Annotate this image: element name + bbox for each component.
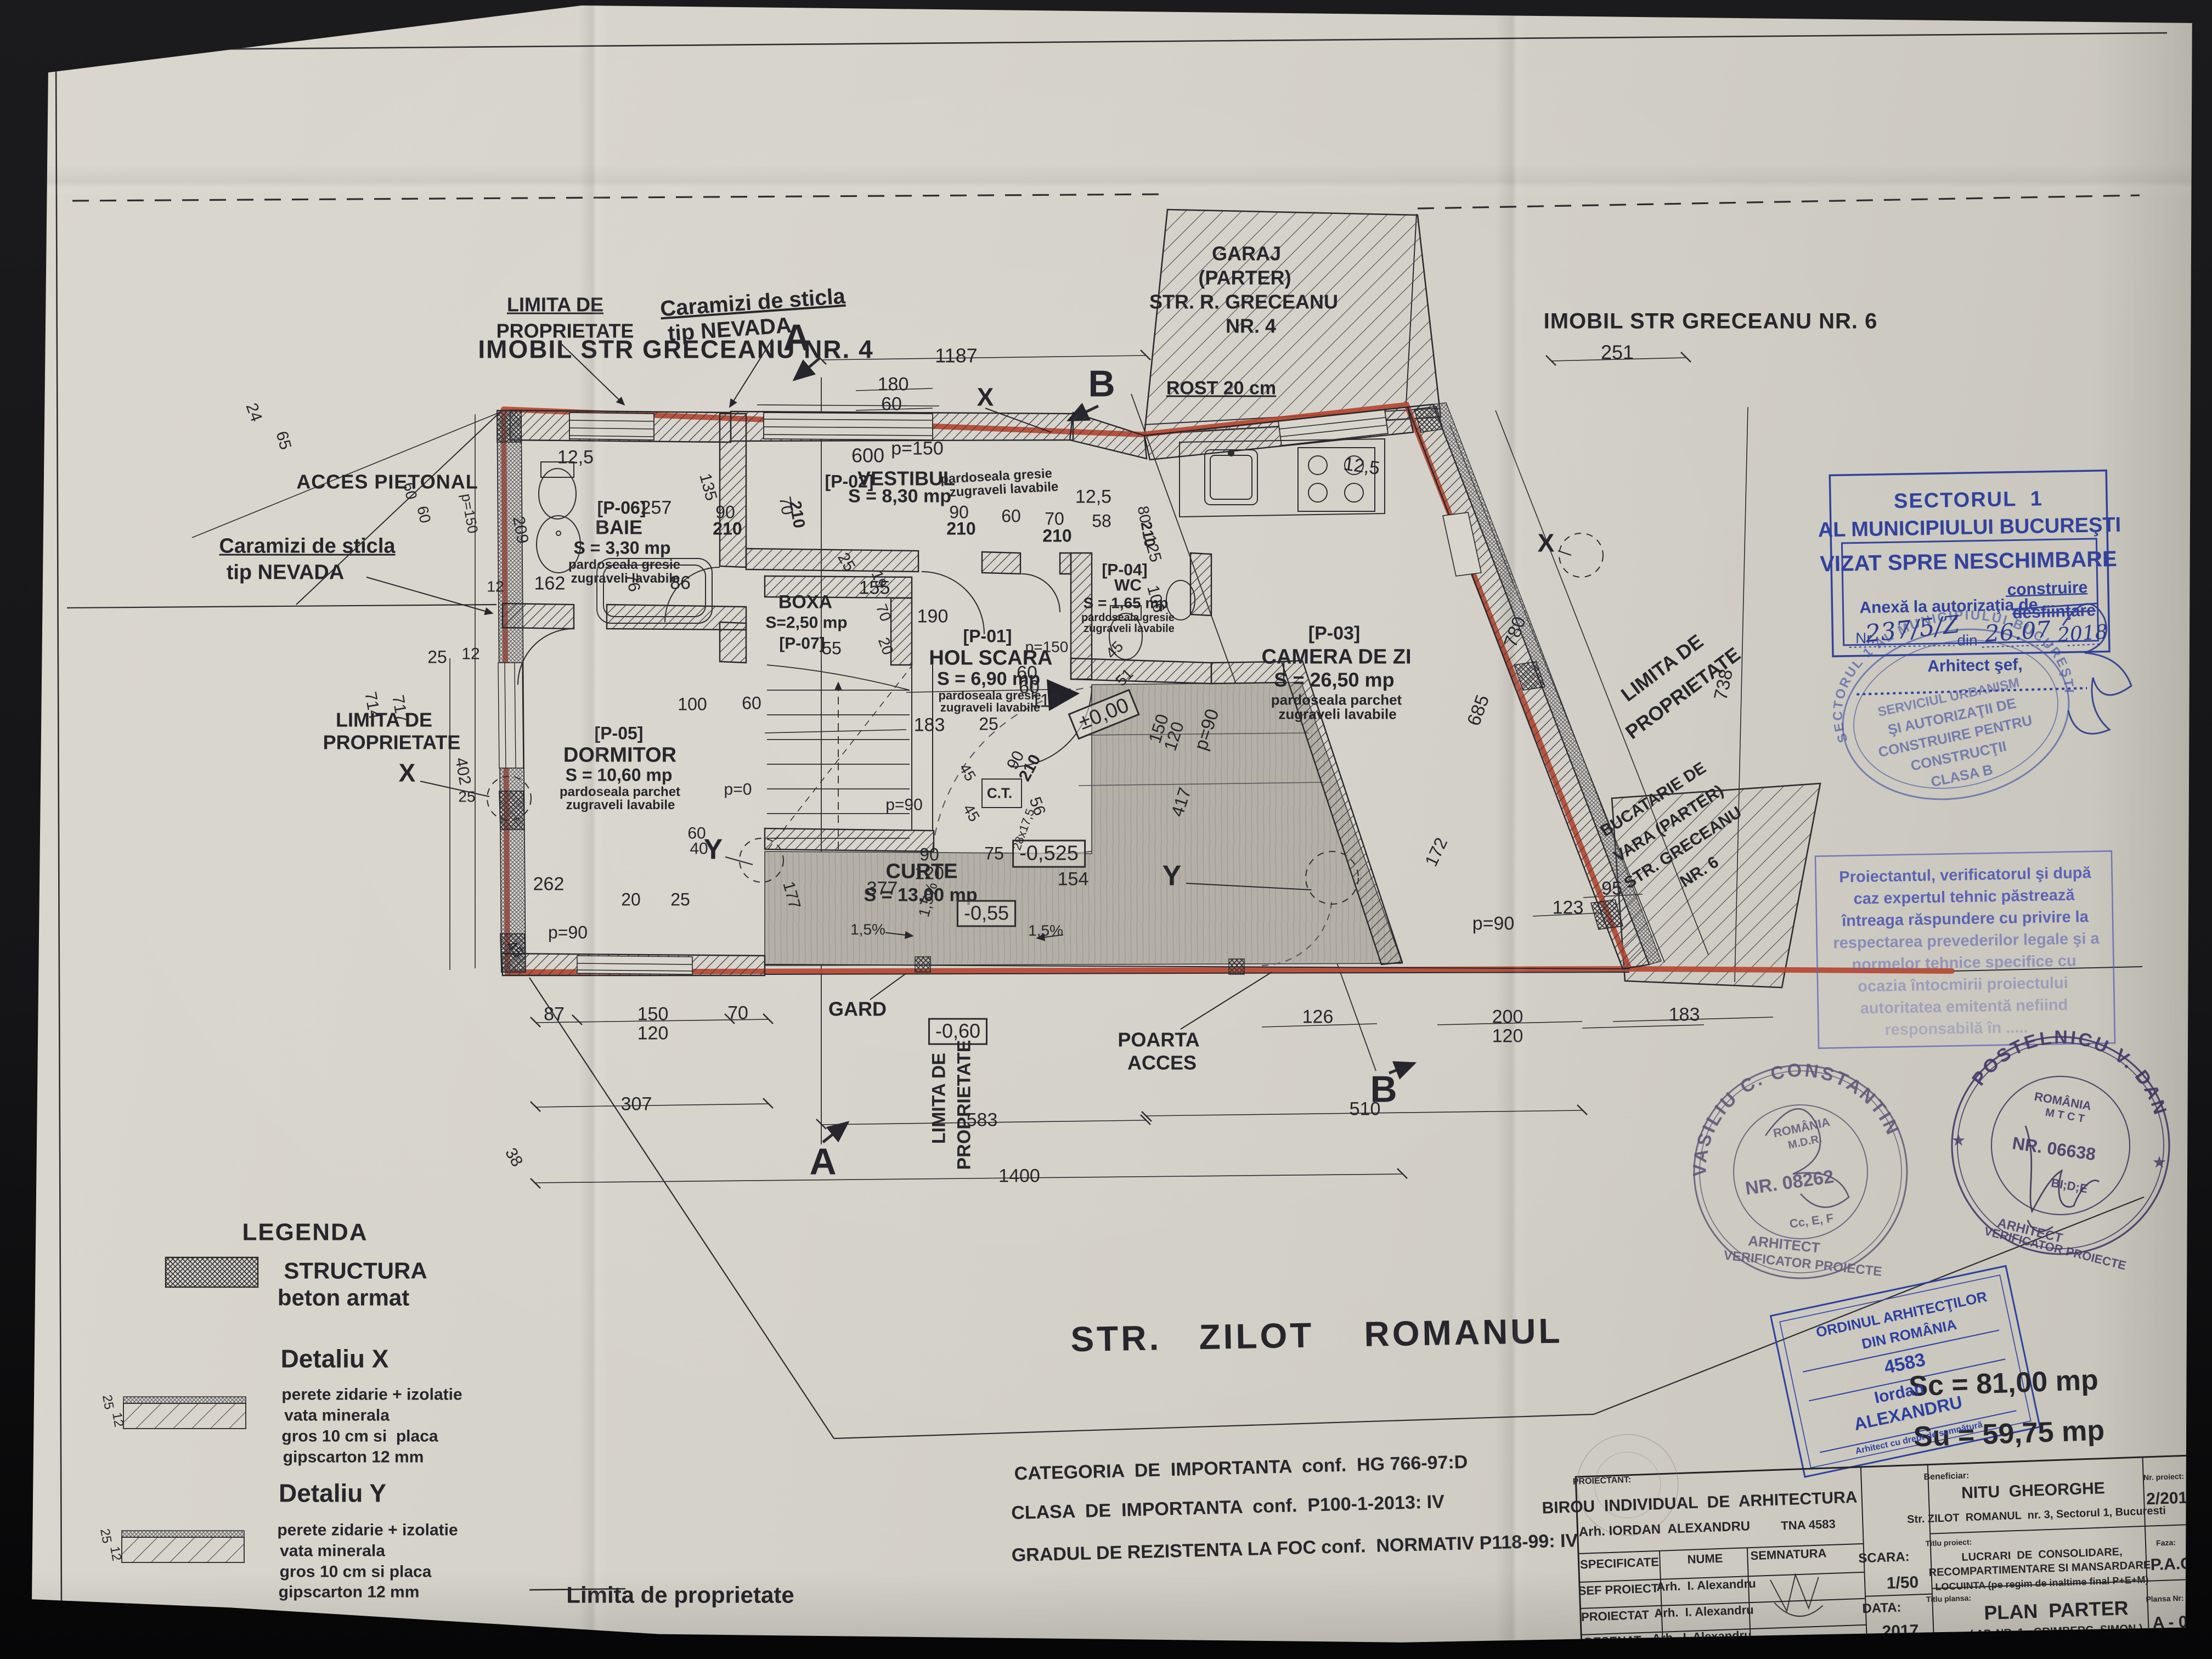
value-sc: Sc = 81,00 mp [1908,1365,2098,1401]
dim-label: Nr. proiect: [2143,1472,2184,1482]
dim-label: 2018 [2057,622,2108,646]
dim-label: ★ [1951,1133,1966,1150]
room-dormitor-id: [P-05] [595,725,644,743]
room-vestibul-area: S = 8,30 mp [848,487,951,506]
dim-label: ocazia întocmirii proiectului [1858,975,2068,995]
dim-label: 1187 [935,346,977,366]
paper-sheet: SECTORUL 1 AL MUNICIPIULUI BUCUREŞTI VAS… [0,0,2212,1659]
dim-label: 780 [1501,614,1530,650]
dim-label: 60 [400,481,419,501]
tb-adresa: Str. ZILOT ROMANUL nr. 3, Sectorul 1, Bu… [1907,1505,2166,1526]
dim-label: pardoseala parchet [1271,693,1402,708]
dim-label: vata minerala [284,1408,390,1425]
dim-label: 120 [1492,1027,1523,1046]
dim-label: p=0 [724,782,752,799]
dim-label: 45 [956,761,978,783]
dim-label: Titlu proiect: [1926,1538,1972,1547]
tb-proiectant: BIROU INDIVIDUAL DE ARHITECTURA [1542,1489,1858,1517]
dim-label: PROPRIETATE [955,1040,974,1170]
dim-label: 210 [1042,527,1071,545]
dim-label: 155 [859,579,890,598]
level-minus-055: -0,55 [957,900,1016,927]
dim-label: 1,5% [1028,923,1063,939]
dim-label: Arh. I. Alexandru [1656,1578,1756,1594]
room-camera-name: CAMERA DE ZI [1261,647,1411,668]
dim-label: 600 [851,446,884,466]
tb-beneficiar: NITU GHEORGHE [1961,1480,2106,1502]
dim-label: 60 [414,505,433,524]
stamp-vasiliu-nr: NR. 08262 [1744,1167,1835,1199]
dim-label: 150 [637,1005,669,1024]
dim-label: gipscarton 12 mm [283,1449,424,1466]
detail-marker-y-court: Y [1163,861,1182,890]
dim-label: ★ [2152,1155,2167,1172]
room-boxa-id: [P-07] [779,636,825,653]
tb-scara: 1/50 [1886,1575,1918,1593]
dim-label: 162 [534,574,566,594]
dim-label: 25 [427,648,447,667]
section-marker-a-top: A [783,319,810,357]
dim-label: responsabilă în ..... [1884,1020,2028,1039]
label-garaj: GARAJ [1212,244,1281,264]
dim-label: 685 [1464,692,1493,728]
dim-label: 12,5 [1075,488,1111,507]
room-hol-id: [P-01] [963,628,1012,646]
note-categoria: CATEGORIA DE IMPORTANTA conf. HG 766-97:… [1014,1453,1468,1483]
dim-label: p=90 [1192,707,1223,753]
dim-label: gros 10 cm si placa [280,1564,432,1581]
label-caramizi-top: Caramizi de sticla [659,285,846,320]
dim-label: 417 [1168,786,1194,819]
dim-label: BI;D;E [2050,1177,2089,1195]
dim-label: 251 [1601,343,1634,363]
tb-tna: TNA 4583 [1781,1518,1836,1532]
dim-label: 190 [917,607,949,627]
dim-label: ACCES [1127,1053,1197,1074]
dim-label: pardoseala parchet [560,786,680,799]
dim-label: 70 [727,1004,748,1023]
dim-label: 257 [641,499,672,518]
dim-label: 125 [1141,533,1164,564]
photo-of-floor-plan: { "stamps": { "oval_ring": "SECTORUL 1 A… [0,0,2212,1659]
dim-label: pardoseala gresie [1081,612,1175,623]
dim-label: p=90 [548,924,588,942]
dim-label: 120 [915,865,944,883]
stamp-sectorul-title: SECTORUL 1 [1894,488,2044,512]
dim-label: 60 [1001,507,1021,526]
dim-label: 12,5 [1342,454,1381,478]
dim-label: 25 [834,550,857,574]
dim-label: 25 [979,715,998,733]
dim-label: 25 [458,789,475,805]
dim-label: 65 [273,430,294,452]
tb-proiectant-label: PROIECTANT: [1573,1476,1632,1487]
dim-label: 20 [621,891,641,909]
tb-apartament: ( AP. NR. 1 - GRIMBERG SIMON ) [1970,1623,2143,1640]
dim-label: PROIECTAT [1581,1609,1650,1624]
dim-label: întreaga răspundere cu privire la [1842,909,2089,929]
dim-label: vata minerala [280,1543,385,1560]
room-camera-id: [P-03] [1308,624,1360,644]
all-text-labels: IMOBIL STR GRECEANU NR. 4LIMITA DEPROPRI… [0,0,2212,1659]
stamp-postelnicu-nr: NR. 06638 [2011,1134,2097,1164]
stamp-vizat: VIZAT SPRE NESCHIMBARE [1820,548,2117,575]
level-zero: ±0,00 [1068,689,1139,740]
dim-label: 119 [1031,692,1060,711]
tb-titlu-plansa: PLAN PARTER [1984,1598,2129,1623]
dim-label: 26.07 [1984,618,2052,646]
dim-label: 75 [984,845,1004,863]
dim-label: SEMNATURA [1750,1547,1827,1562]
dim-label: Arhitect şef, [1927,657,2023,675]
section-marker-b-bottom: B [1370,1070,1397,1108]
label-imobil-greceanu-6: IMOBIL STR GRECEANU NR. 6 [1544,311,1878,333]
detail-marker-x-right: X [1538,531,1555,556]
dim-label: zugraveli lavabile [566,799,675,812]
dim-label: autoritatea emitentă nefiind [1860,997,2068,1017]
room-baie-name: BAIE [595,518,642,538]
dim-label: 45 [960,802,982,824]
dim-label: (PARTER) [1198,268,1291,289]
label-gard: GARD [828,1000,887,1020]
legend-title: LEGENDA [242,1221,368,1245]
dim-label: Faza: [2156,1538,2176,1547]
dim-label: NUME [1687,1553,1723,1566]
dim-label: SEF PROIECT [1578,1582,1658,1598]
room-dormitor-name: DORMITOR [563,745,676,766]
dim-label: 210 [946,520,975,538]
dim-label: 123 [1553,899,1584,918]
dim-label: beton armat [278,1286,409,1310]
label-caramizi-left: Caramizi de sticla [219,536,395,557]
dim-label: zugraveli lavabile [940,702,1040,714]
tb-data-label: DATA: [1862,1601,1901,1616]
dim-label: normelor tehnice specifice cu [1852,953,2076,974]
dim-label: 25 [98,1528,114,1545]
dim-label: SPECIFICATE [1580,1556,1660,1571]
room-boxa-name: BOXA [778,593,832,612]
dim-label: 38 [501,1145,525,1170]
dim-label: 210 [713,520,742,538]
dim-label: 172 [1422,835,1451,869]
section-marker-a-bottom: A [809,1143,836,1181]
tb-scara-label: SCARA: [1858,1550,1910,1566]
dim-label: 177 [780,880,803,911]
dim-label: 183 [1669,1006,1700,1025]
stamp-nr-autorizatie: 237/5/Z [1864,613,1961,647]
note-proiectantul: Proiectantul, verificatorul şi după [1839,865,2091,886]
dim-label: zugraveli lavabile [571,572,680,585]
dim-label: 307 [621,1095,652,1114]
dim-label: Arh. I. Alexandru [1654,1604,1754,1620]
room-camera-area: S = 26,50 mp [1274,670,1394,691]
dim-label: 126 [1302,1008,1334,1027]
dim-label: Cc, E, F [1788,1212,1834,1230]
dim-label: p=150 [459,493,481,535]
detail-marker-x-top: X [977,385,994,410]
dim-label: 60 [742,695,761,713]
dim-label: zugraveli lavabile [1278,707,1396,722]
dim-label: PROPRIETATE [323,733,461,753]
dim-label: caz expertul tehnic păstrează [1853,888,2074,908]
legend-detaliu-x: Detaliu X [281,1346,389,1372]
dim-label: 95 [1601,879,1622,899]
dim-label: 1400 [998,1167,1040,1186]
dim-label: respectarea prevederilor legale şi a [1833,931,2100,952]
label-acces-pietonal: ACCES PIETONAL [296,472,478,493]
dim-label: 45 [503,938,526,961]
label-rost: ROST 20 cm [1166,379,1276,398]
dim-label: DESENAT [1584,1634,1641,1649]
label-centrala-termica: C.T. [987,786,1012,801]
legend-structura: STRUCTURA [284,1260,427,1283]
label-limita-bottom: LIMITA DE [930,1053,949,1144]
label-strada-zilot: STR. ZILOT ROMANUL [1070,1313,1563,1358]
dim-label: NR. 4 [1226,317,1276,337]
dim-label: Titlu plansa: [1926,1594,1972,1603]
tb-nr-proiect: 2/2017 [2146,1489,2197,1508]
dim-label: 25 [100,1394,116,1411]
dim-label: 90 [919,846,939,864]
tb-arhitect: Arh. IORDAN ALEXANDRU [1578,1520,1750,1539]
dim-label: zugraveli lavabile [1084,623,1175,634]
room-wc-name: WC [1114,578,1142,595]
dim-label: 200 [1492,1008,1523,1027]
tb-plansa-nr: A - 02 [2152,1613,2197,1632]
dim-label: 24 [242,401,264,424]
dim-label: 180 [878,375,909,394]
dim-label: AL MUNICIPIULUI BUCUREŞTI [1818,515,2121,541]
dim-label: perete zidarie + izolatie [277,1522,458,1539]
label-limita-top: LIMITA DE [507,295,603,315]
dim-label: 70 [873,602,893,623]
dim-label: 70 [1045,510,1064,528]
room-boxa-area: S=2,50 mp [765,615,847,632]
dim-label: 12 [110,1412,126,1429]
dim-label: gipscarton 12 mm [279,1584,420,1601]
dim-label: 25 [670,891,690,909]
dim-label: p=150 [891,439,944,459]
dim-label: 12 [461,646,479,663]
dim-label: p=90 [885,797,923,814]
dim-label: 58 [1092,512,1111,531]
detail-marker-y-left: Y [704,835,723,864]
detail-marker-x-left: X [399,760,416,786]
dim-label: 12,5 [557,448,594,467]
tb-faza: P.A.C. [2150,1555,2197,1574]
dim-label: 87 [544,1005,565,1024]
dim-label: 45 [1103,639,1126,662]
tb-data: 2017 [1882,1623,1919,1641]
dim-label: 100 [678,696,707,714]
dim-label: din [1957,633,1977,649]
dim-label: 402 [452,757,473,787]
dim-label: perete zidarie + izolatie [281,1387,462,1404]
dim-label: NR. 6 [1678,854,1722,890]
dim-label: Beneficiar: [1923,1471,1969,1482]
dim-label: 60 [881,395,902,414]
dim-label: 12 [108,1545,123,1562]
dim-label: 20 [875,635,895,657]
room-baie-id: [P-06] [597,499,646,517]
dim-label: 210 [786,500,808,530]
dim-label: Plansa Nr: [2146,1594,2184,1604]
label-poarta-acces: POARTA [1118,1030,1199,1051]
dim-label: 120 [637,1024,669,1043]
dim-label: pardoseala gresie [568,558,680,572]
dim-label: STR. R. GRECEANU [1149,292,1338,313]
dim-label: Arh. I. Alexandru [1652,1629,1752,1645]
dim-label: gros 10 cm si placa [281,1429,438,1446]
room-baie-area: S = 3,30 mp [574,539,671,557]
legend-detaliu-y: Detaliu Y [279,1481,386,1506]
dim-label: 51 [1113,666,1136,689]
label-limita-top-2: PROPRIETATE [496,321,634,342]
dim-label: 1,5% [850,922,885,938]
dim-label: 12 [487,579,504,595]
legend-limita: Limita de proprietate [566,1584,794,1607]
dim-label: p=90 [1472,915,1515,934]
room-dormitor-area: S = 10,60 mp [566,766,673,785]
dim-label: 183 [914,716,945,735]
label-limita-left: LIMITA DE [336,710,432,731]
dim-label: tip NEVADA [227,562,345,584]
note-gradul: GRADUL DE REZISTENTA LA FOC conf. NORMAT… [1011,1531,1578,1565]
dim-label: p=150 [1025,640,1069,656]
dim-label: 154 [1058,870,1089,889]
section-marker-b-top: B [1088,365,1115,403]
dim-label: 262 [533,875,565,894]
dim-label: 209 [510,515,531,545]
note-clasa: CLASA DE IMPORTANTA conf. P100-1-2013: I… [1011,1492,1444,1522]
dim-label: 135 [696,472,720,503]
